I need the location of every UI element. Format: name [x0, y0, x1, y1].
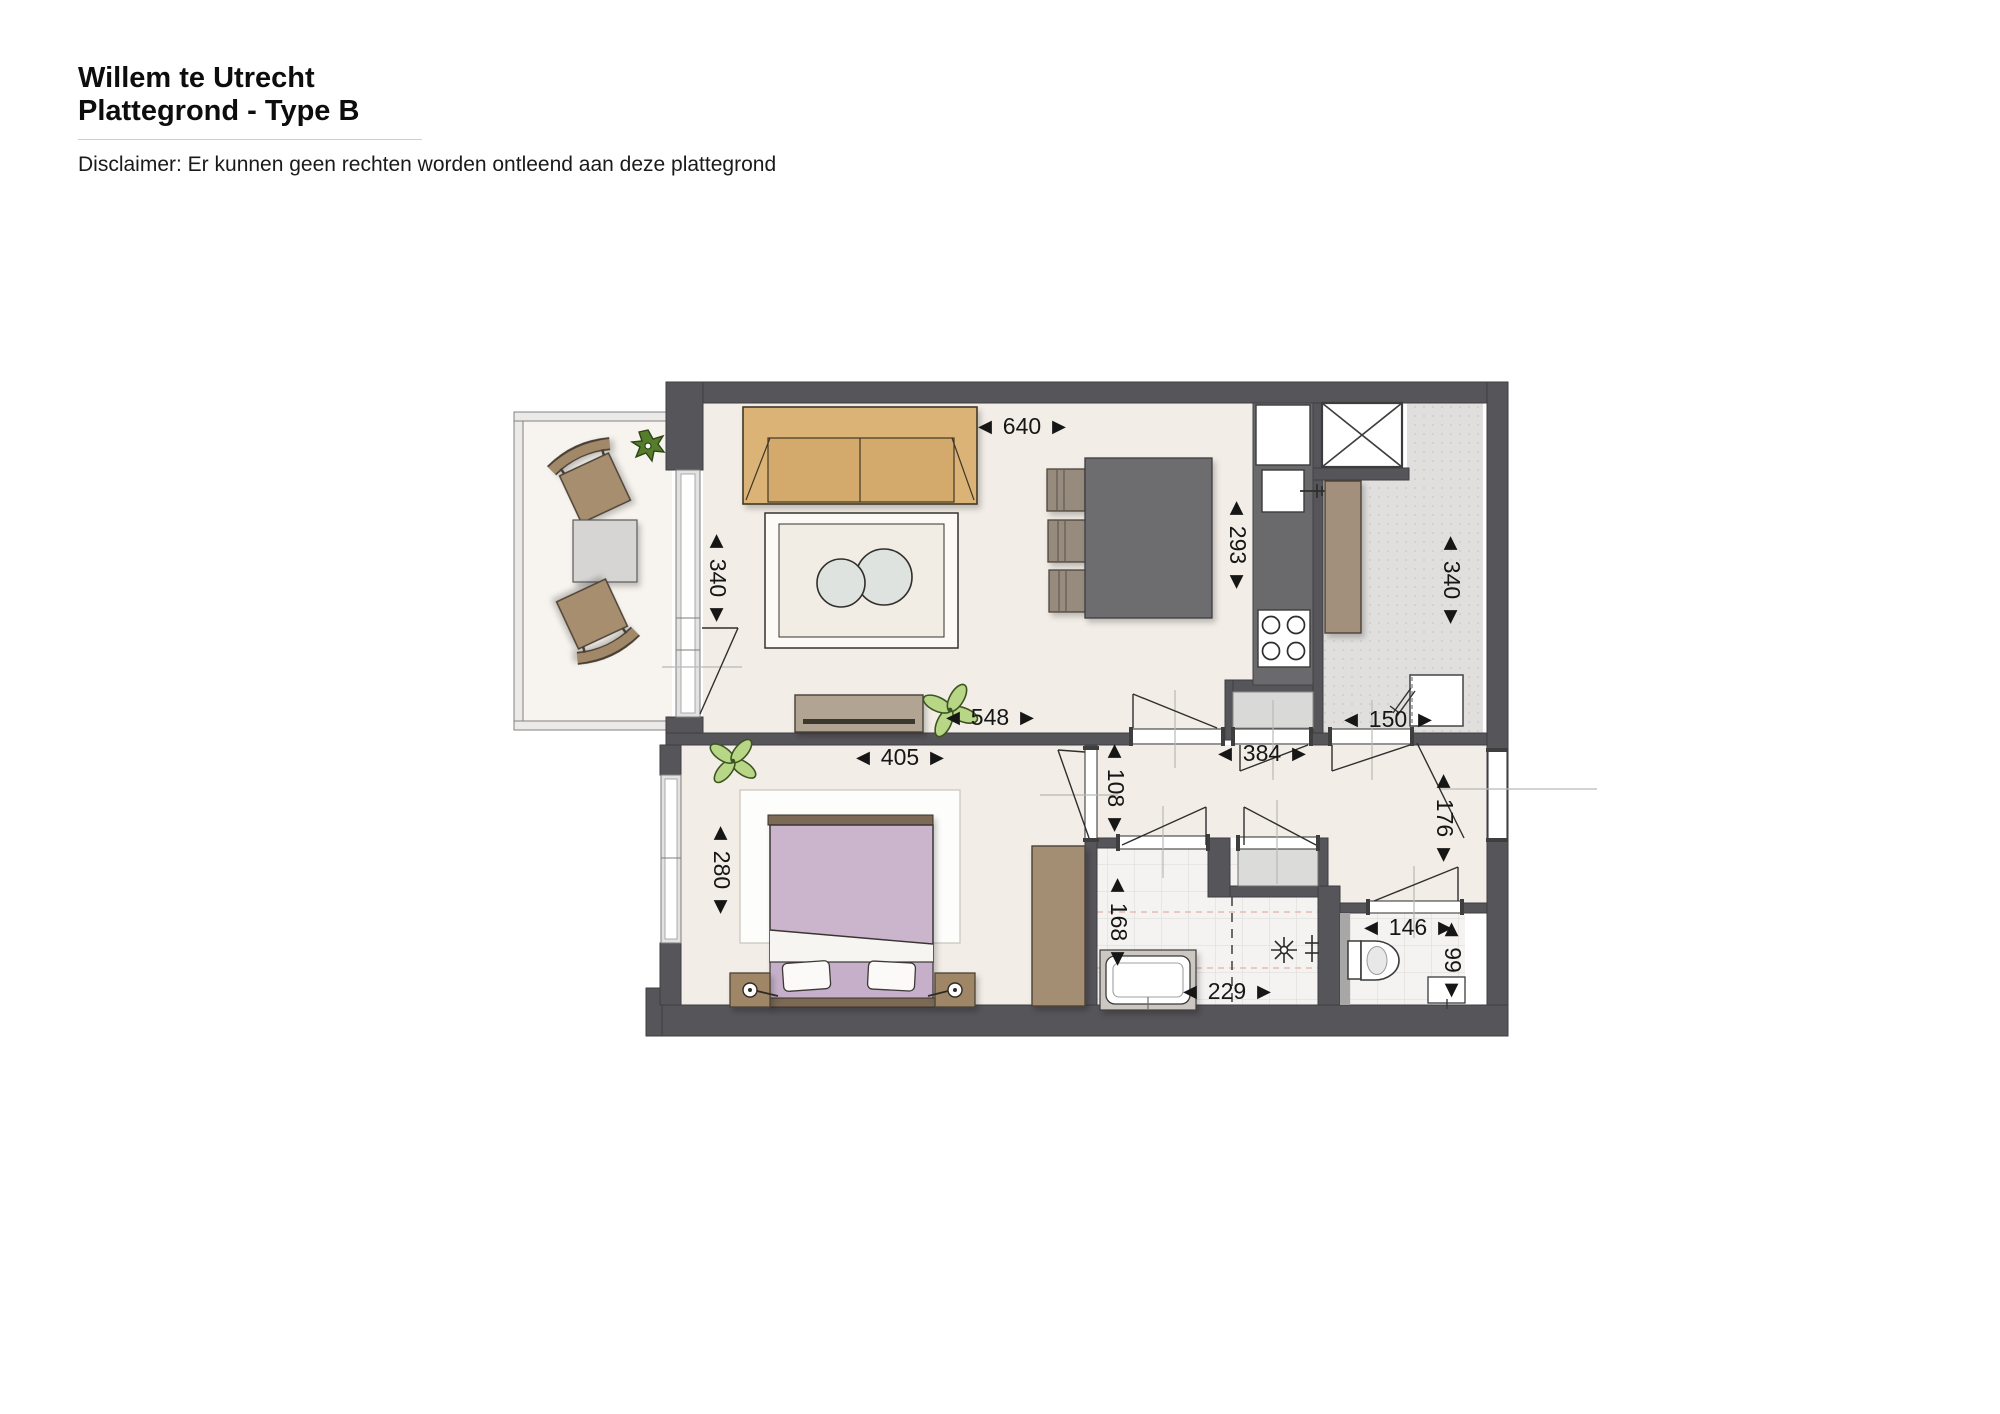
- dim-bathroom-width: ◄ 229 ►: [1179, 978, 1276, 1004]
- wall-bath-toilet: [1318, 886, 1340, 1005]
- wall-hall-toilet-b: [1462, 903, 1487, 913]
- wall-closet-left: [1208, 838, 1230, 897]
- kitchen-cabinet: [1256, 405, 1310, 465]
- wall-right: [1487, 382, 1508, 1036]
- wall-hall-bath-a: [1097, 838, 1118, 848]
- kitchen-sink: [1262, 470, 1304, 512]
- bed: [768, 815, 935, 1007]
- dining-table: [1085, 458, 1212, 618]
- stove-icon: [1258, 610, 1310, 667]
- dim-toilet-depth: ◄ 99 ►: [1440, 918, 1466, 1002]
- wall-bottom: [660, 1005, 1508, 1036]
- wall-left-lower-b: [660, 943, 681, 1005]
- dining-chair: [1047, 469, 1085, 511]
- bedroom-door-frame: [1085, 748, 1097, 840]
- balcony-table: [573, 520, 637, 582]
- bed-pillow: [782, 960, 831, 991]
- dim-bedroom-width: ◄ 405 ►: [852, 744, 949, 770]
- living-door-frame: [1132, 729, 1222, 744]
- bed-pillow: [867, 961, 915, 991]
- dim-hall-width: ◄ 108 ►: [1103, 740, 1129, 837]
- wall-under-shaft: [1313, 468, 1409, 480]
- dim-living-width: ◄ 640 ►: [974, 413, 1071, 439]
- hall-closet: [1238, 848, 1318, 886]
- bed-headboard: [768, 815, 933, 825]
- wall-top: [666, 382, 1508, 403]
- dim-storage-depth: ◄ 340 ►: [1439, 532, 1465, 629]
- sofa: [743, 407, 977, 504]
- dim-living-bottom-span: ◄ 548 ►: [942, 704, 1039, 730]
- dining-chair: [1049, 570, 1087, 612]
- dim-bedroom-depth: ◄ 280 ►: [709, 822, 735, 919]
- wall-left-lower-a: [660, 745, 681, 775]
- dim-kitchen-depth: ◄ 293 ►: [1225, 497, 1251, 594]
- floorplan-page: Willem te Utrecht Plattegrond - Type B D…: [0, 0, 2000, 1414]
- balcony-window-door: [676, 470, 700, 717]
- toilet-icon: [1348, 941, 1399, 980]
- closet-door-frame: [1238, 837, 1318, 849]
- dim-hall-length: ◄ 384 ►: [1214, 740, 1311, 766]
- floorplan-drawing: ◄ 640 ► ◄ 340 ► ◄ 293 ► ◄ 340 ► ◄ 548 ► …: [0, 0, 2000, 1414]
- wall-hall-stub: [1311, 733, 1330, 745]
- bed-footboard: [768, 998, 935, 1007]
- wall-hall-right: [1412, 733, 1487, 745]
- front-door-frame: [1488, 750, 1507, 840]
- dining-chairs: [1047, 469, 1087, 612]
- shaft: [1322, 403, 1402, 467]
- wardrobe: [1032, 846, 1085, 1006]
- wall-closet-bottom: [1230, 886, 1328, 897]
- dim-washer-niche: ◄ 150 ►: [1340, 706, 1437, 732]
- wall-hall-toilet-a: [1340, 903, 1368, 913]
- storage-cabinet: [1325, 481, 1361, 633]
- hallway-entry-floor: [1328, 838, 1487, 903]
- dining-chair: [1048, 520, 1086, 562]
- dim-living-depth: ◄ 340 ►: [705, 530, 731, 627]
- wall-left-upper-a: [666, 382, 703, 470]
- bedroom-window: [661, 775, 681, 943]
- toilet-door-frame: [1368, 901, 1462, 913]
- dim-bathroom-depth: ◄ 168 ►: [1106, 874, 1132, 971]
- dim-entry-depth: ◄ 176 ►: [1432, 770, 1458, 867]
- sideboard: [795, 695, 923, 732]
